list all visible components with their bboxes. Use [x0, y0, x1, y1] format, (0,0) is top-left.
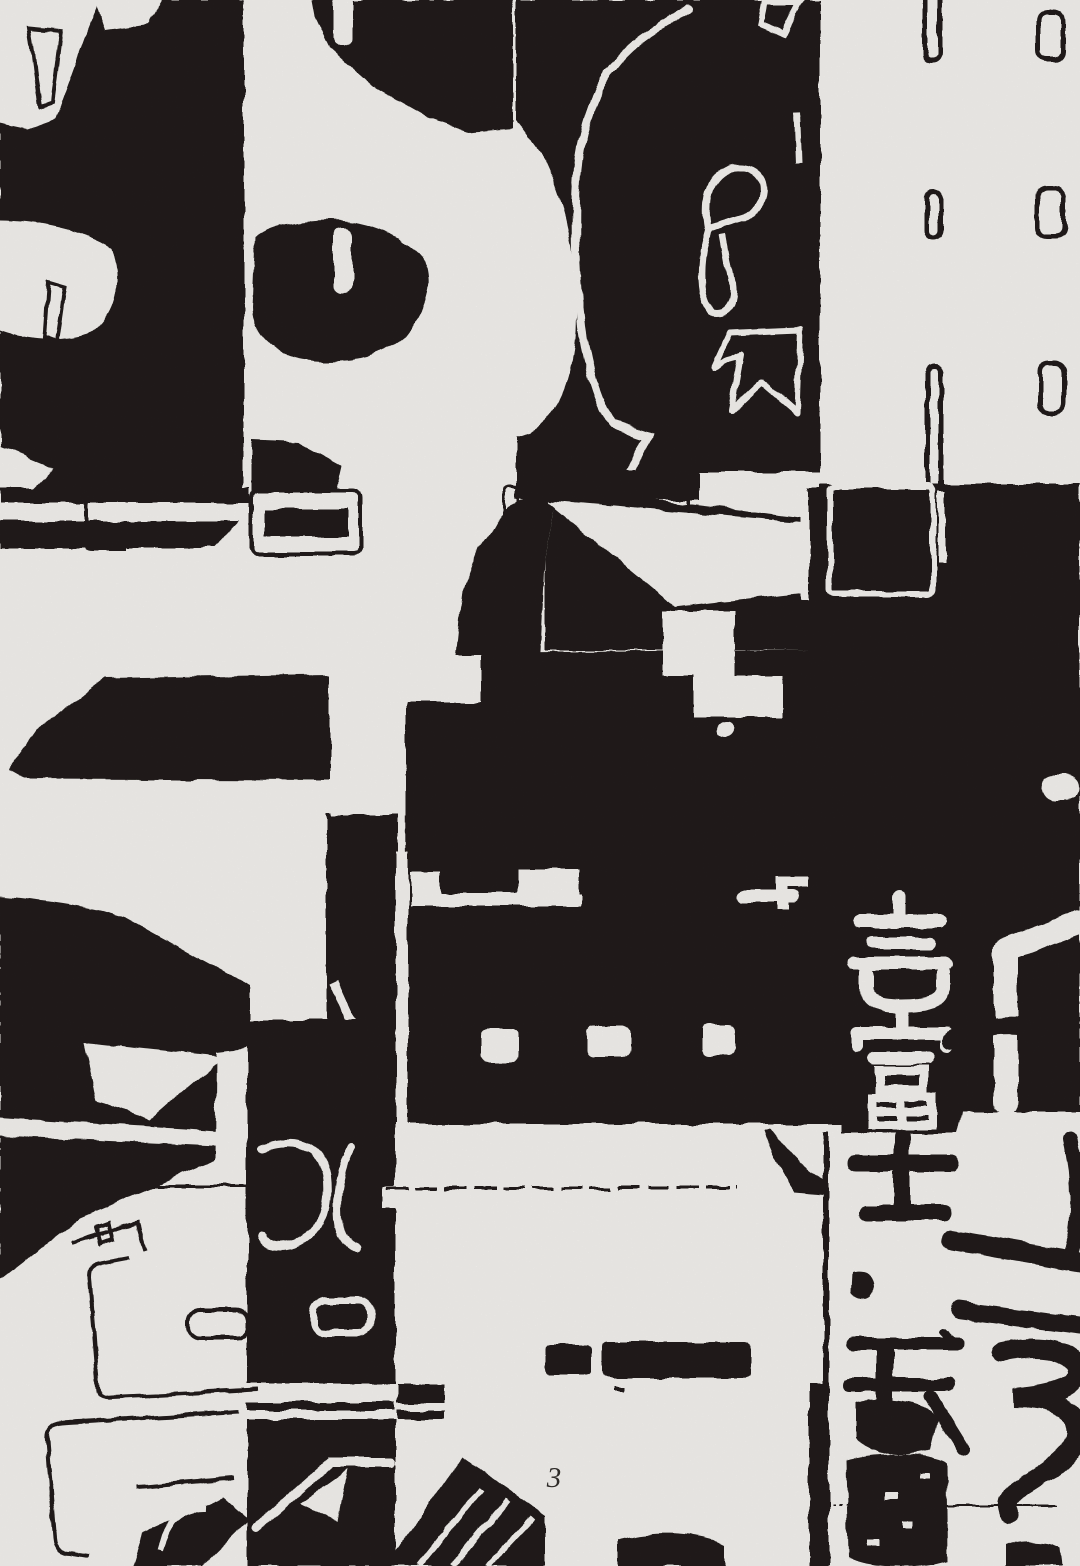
photocopy-collage-artwork [0, 0, 1080, 1566]
photocopy-grain-overlay [0, 0, 1080, 1566]
page-number: 3 [530, 1462, 578, 1506]
scanned-book-page: 壱 富 士 、 弐 鷹 3 [0, 0, 1080, 1566]
